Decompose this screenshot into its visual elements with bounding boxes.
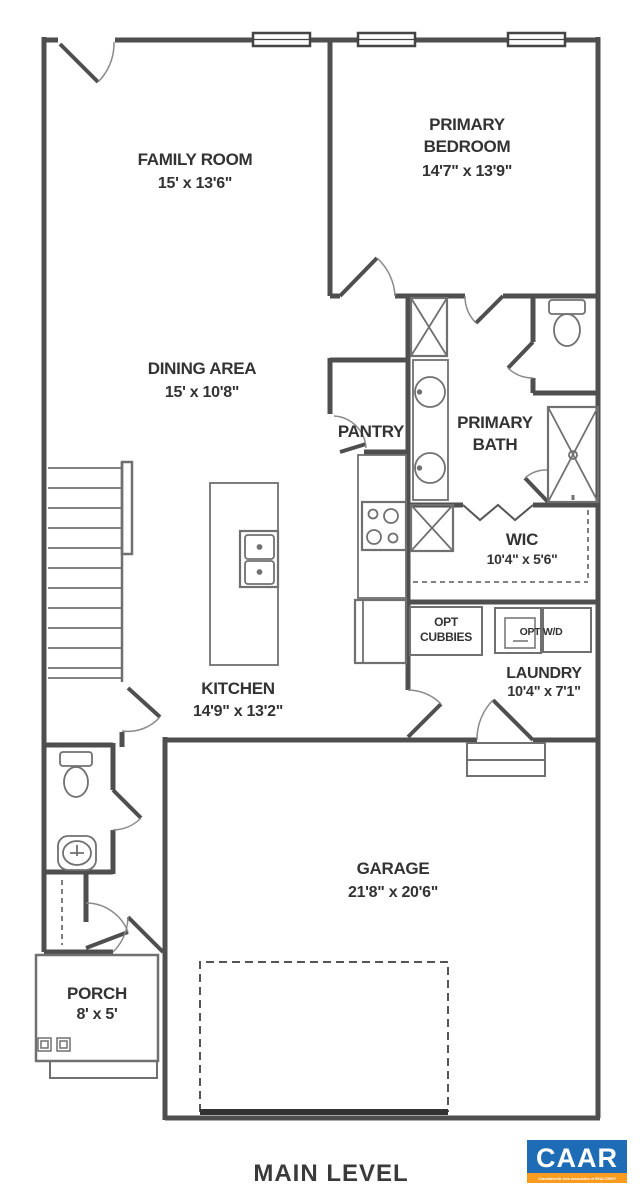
entry-top-door-leaf [60,44,98,82]
powder-door-arc [113,818,141,830]
windows [253,33,565,46]
wic-closet-box [411,505,453,551]
family-room-name: FAMILY ROOM [138,150,253,169]
caar-logo-text: CAAR [536,1143,618,1173]
primary-bath-name-line1: PRIMARY [457,413,534,432]
kitchen-name: KITCHEN [201,679,274,698]
porch-posts [38,1038,70,1051]
refrigerator [355,600,406,663]
wc-walls [533,294,598,393]
opt-cubbies-label: OPT CUBBIES [420,615,472,644]
porch-stoop [50,1061,157,1078]
stair-corridor-door-leaf [128,688,160,717]
interior-walls [44,40,598,922]
opt-cubbies-line1: OPT [434,615,459,629]
dining-area-dims: 15' x 10'8" [165,384,239,401]
kitchen-dims: 14'9" x 13'2" [193,703,283,720]
pedestal-sink [58,836,96,870]
primary-bedroom-name-line1: PRIMARY [429,115,506,134]
water-closet-toilet [549,300,585,346]
powder-toilet [60,752,92,797]
stair-rail [122,462,132,554]
front-door-leaf [128,917,163,952]
laundry-name: LAUNDRY [506,665,582,682]
kitchen-hall-door-arc [408,690,441,704]
garage-features [200,743,545,1112]
entry-top-door-arc [98,42,114,82]
staircase [48,462,132,682]
stair-corridor-door-arc [122,717,160,731]
garage-dims: 21'8" x 20'6" [348,884,438,901]
porch-name: PORCH [67,984,127,1003]
powder-room-fixtures [58,752,96,945]
powder-door-leaf [113,790,141,818]
dining-area-name: DINING AREA [148,359,256,378]
laundry-label: LAUNDRY 10'4" x 7'1" [506,665,582,700]
linen-closet [411,298,447,356]
garage-door-leaf [493,700,533,740]
pantry-door-leaf [340,444,366,452]
garage-door-arc [477,700,493,740]
floor-plan-drawing: FAMILY ROOM 15' x 13'6" PRIMARY BEDROOM … [0,0,640,1193]
primary-bedroom-dims: 14'7" x 13'9" [422,163,512,180]
primary-bath-label: PRIMARY BATH [457,413,534,454]
primary-bath-name-line2: BATH [473,435,518,454]
opt-wd-label: OPT W/D [520,626,564,638]
primary-bedroom-name-line2: BEDROOM [424,137,511,156]
porch-label: PORCH 8' x 5' [67,984,127,1023]
garage-name: GARAGE [357,859,430,878]
bedroom-door-leaf [340,258,377,296]
wic-label: WIC 10'4" x 5'6" [487,530,558,567]
exterior-walls [44,37,600,1120]
kitchen-label: KITCHEN 14'9" x 13'2" [193,679,283,720]
garage-door-recess-dashed [200,962,448,1112]
bath-door-leaf [476,296,503,323]
wc-door-arc [508,368,533,378]
wic-dims: 10'4" x 5'6" [487,551,558,567]
caar-logo-tagline: Charlottesville Area Association of REAL… [538,1177,616,1181]
laundry-dims: 10'4" x 7'1" [507,684,581,700]
family-room-label: FAMILY ROOM 15' x 13'6" [138,150,253,192]
closet-door-arc [86,903,128,932]
garage-landing-step [467,743,545,776]
range-cooktop [362,502,406,550]
pantry-label: PANTRY [338,422,405,441]
opt-cubbies-line2: CUBBIES [420,630,472,644]
dining-area-label: DINING AREA 15' x 10'8" [148,359,256,401]
double-vanity [413,360,448,500]
porch-dims: 8' x 5' [76,1006,117,1023]
wic-name: WIC [506,530,538,549]
family-room-dims: 15' x 13'6" [158,175,232,192]
stair-treads [48,468,122,678]
primary-bedroom-label: PRIMARY BEDROOM 14'7" x 13'9" [422,115,512,180]
plan-title: MAIN LEVEL [253,1160,408,1187]
shower-door-leaf [525,478,548,502]
shower [548,407,598,502]
wic-bifold-doors [463,505,533,520]
bedroom-door-arc [377,258,395,296]
kitchen-hall-door-leaf [408,704,441,737]
shower-door-arc [525,470,548,478]
floor-plan-page: FAMILY ROOM 15' x 13'6" PRIMARY BEDROOM … [0,0,640,1193]
garage-label: GARAGE 21'8" x 20'6" [348,859,438,901]
wc-door-leaf [508,342,533,368]
kitchen-fixtures [210,455,406,665]
island-sink [240,531,278,587]
bath-door-arc [465,296,476,323]
caar-logo: CAAR Charlottesville Area Association of… [527,1140,627,1183]
